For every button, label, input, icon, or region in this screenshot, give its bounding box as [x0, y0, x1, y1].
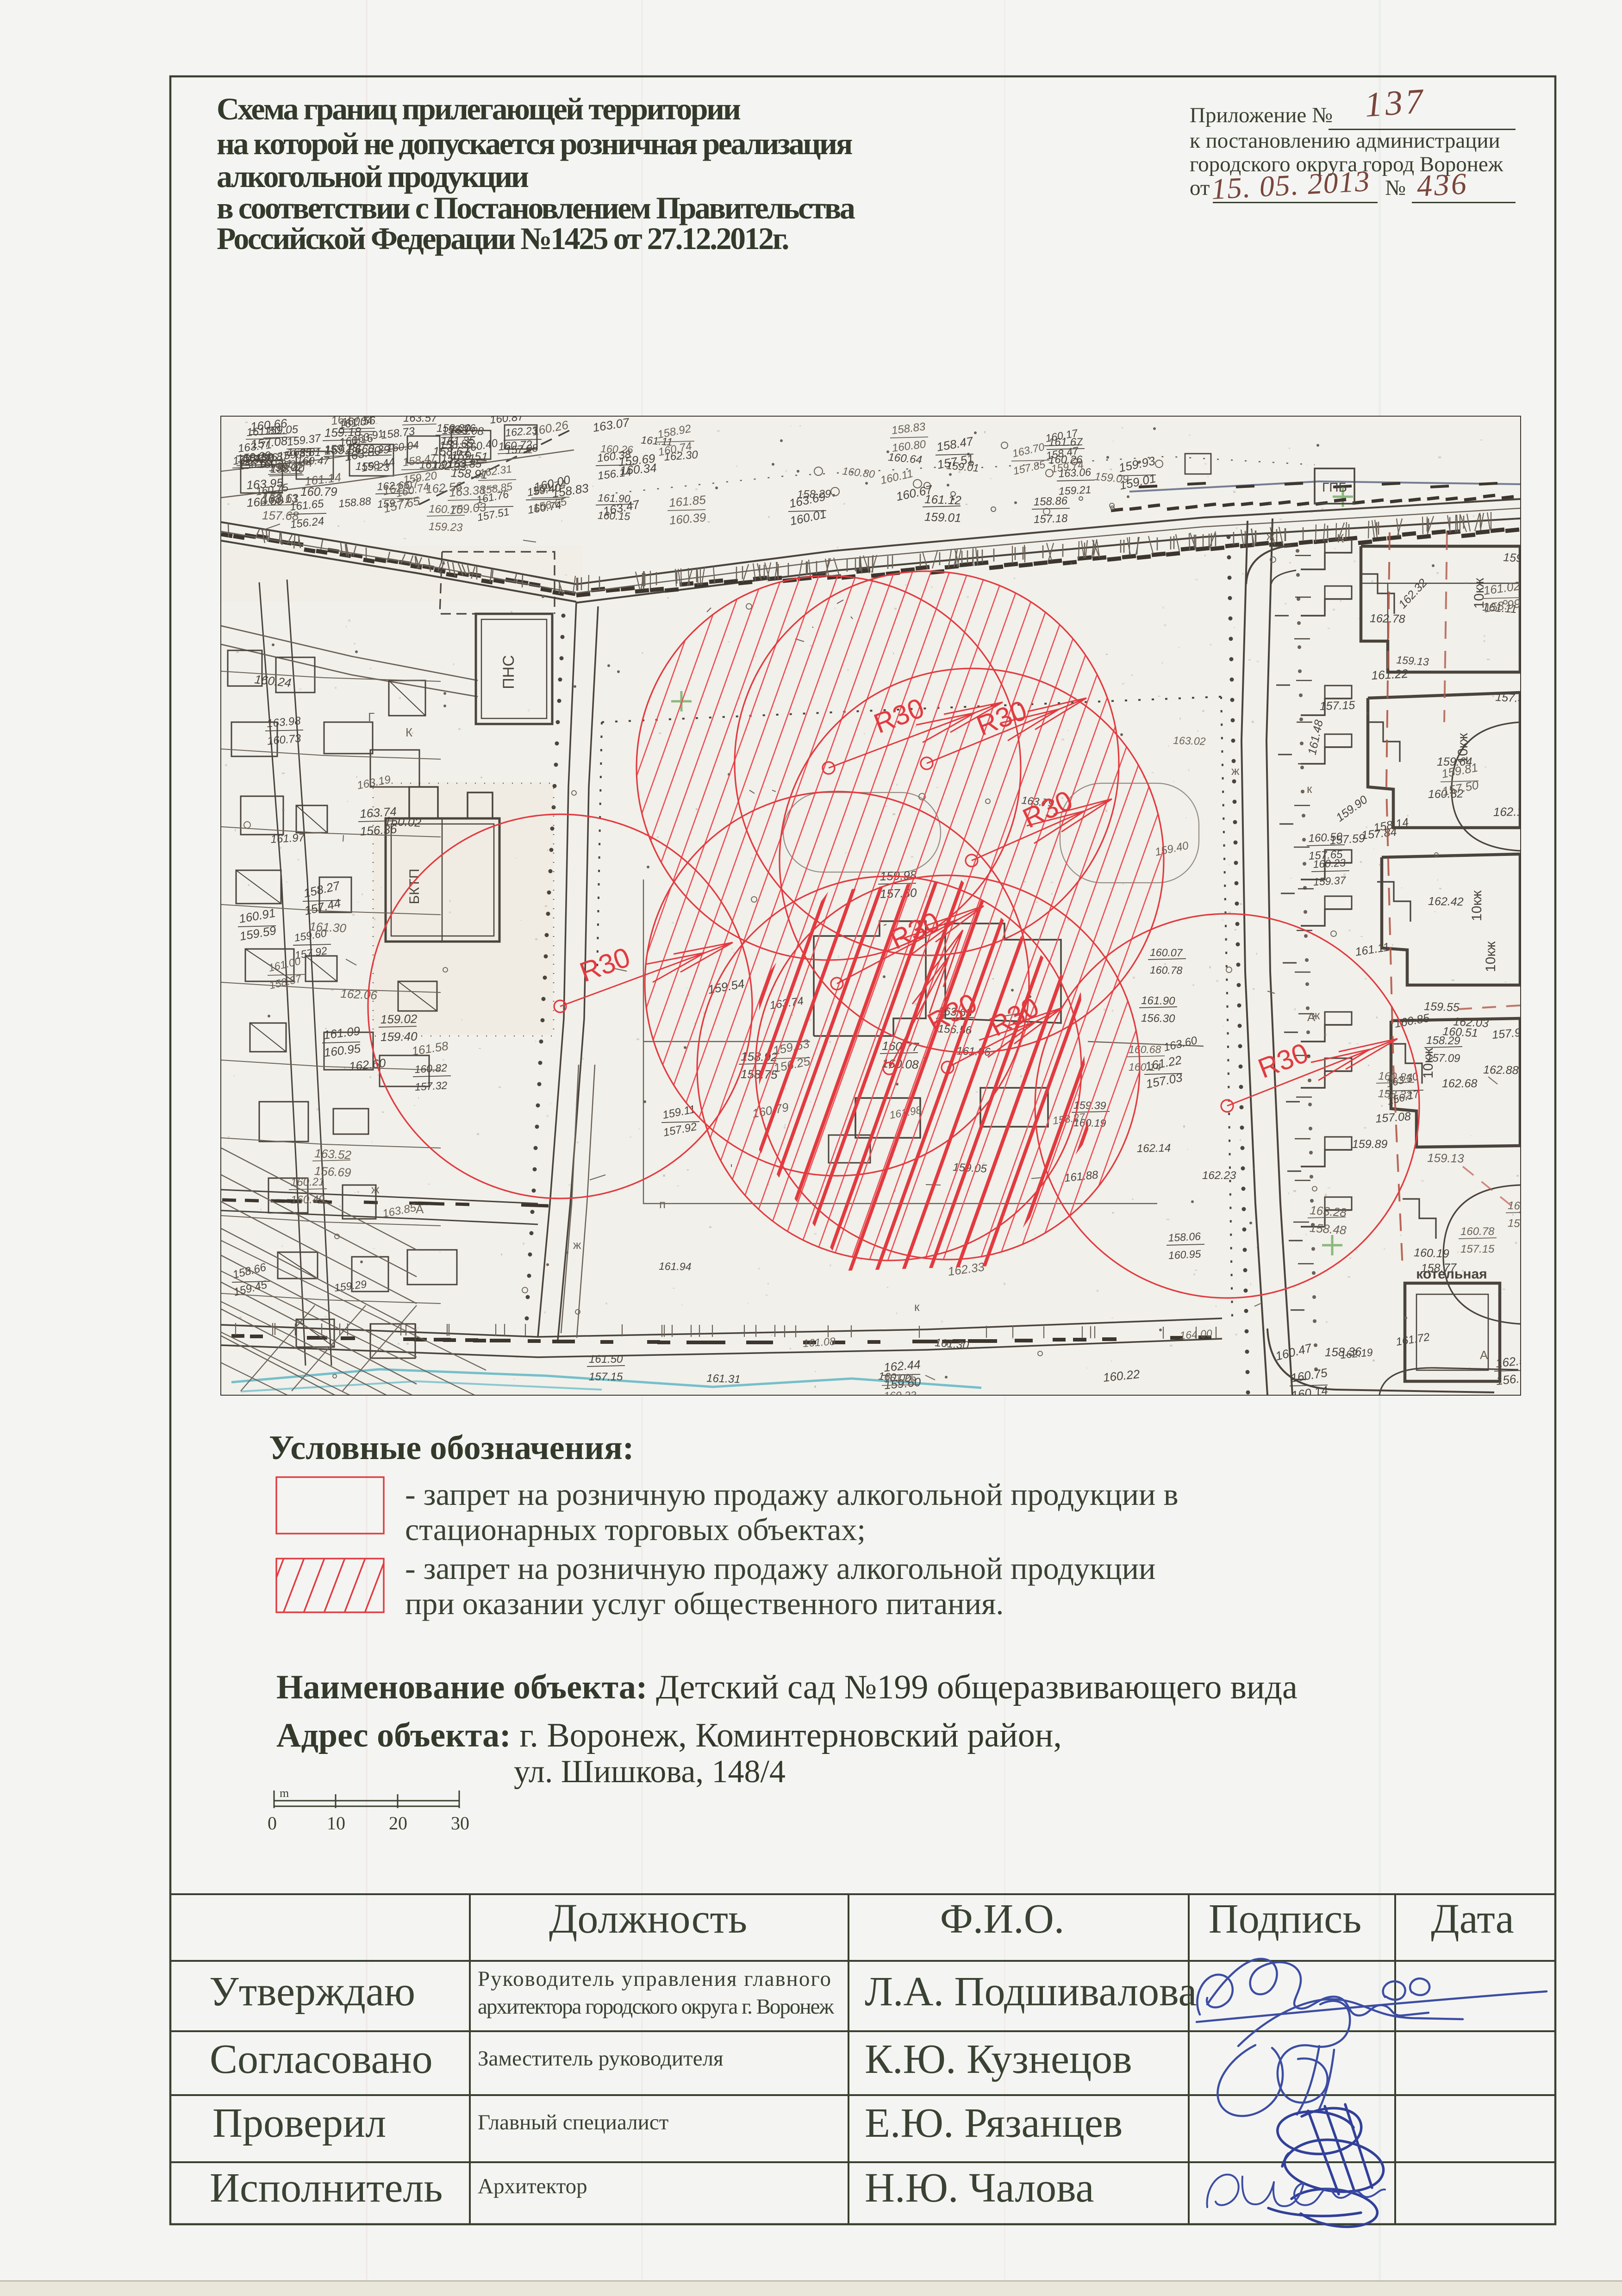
svg-text:160.78: 160.78 [1150, 964, 1183, 976]
svg-text:161.30: 161.30 [309, 919, 347, 935]
svg-text:котельная: котельная [1416, 1267, 1487, 1282]
svg-text:161.22: 161.22 [1371, 667, 1409, 682]
svg-text:162.23: 162.23 [1202, 1169, 1236, 1182]
svg-text:163.52: 163.52 [314, 1146, 352, 1162]
svg-text:160.79: 160.79 [300, 485, 337, 499]
svg-text:156.30: 156.30 [1141, 1012, 1176, 1025]
svg-text:10: 10 [327, 1813, 345, 1834]
svg-text:157.95: 157.95 [1491, 1025, 1528, 1042]
svg-text:к: к [914, 1300, 920, 1314]
svg-text:161.25: 161.25 [884, 1372, 917, 1384]
svg-text:159.01: 159.01 [924, 510, 962, 525]
svg-text:161.94: 161.94 [659, 1260, 692, 1273]
svg-text:159.55: 159.55 [1424, 1000, 1460, 1014]
svg-text:160.49: 160.49 [291, 1193, 325, 1206]
svg-text:15. 05. 2013: 15. 05. 2013 [1210, 164, 1371, 206]
svg-text:158.06: 158.06 [1168, 1230, 1201, 1244]
svg-text:163.08: 163.08 [449, 424, 484, 438]
svg-text:А: А [1480, 1348, 1488, 1362]
svg-text:157.08: 157.08 [1375, 1110, 1411, 1125]
svg-text:К: К [405, 725, 412, 739]
svg-text:160.19: 160.19 [1414, 1246, 1449, 1260]
svg-text:159.51: 159.51 [451, 448, 488, 464]
svg-text:160.68: 160.68 [1129, 1043, 1161, 1055]
svg-text:ж: ж [1266, 529, 1275, 543]
svg-text:159.89: 159.89 [1352, 1138, 1388, 1151]
svg-text:159.23: 159.23 [356, 460, 390, 474]
svg-text:10кж: 10кж [1469, 890, 1485, 921]
svg-text:160.78: 160.78 [1460, 1225, 1495, 1238]
svg-text:157.15: 157.15 [1319, 699, 1355, 713]
svg-text:А: А [416, 1202, 424, 1216]
svg-text:к: к [1307, 782, 1312, 796]
svg-text:160.70: 160.70 [429, 503, 463, 517]
svg-text:160.50: 160.50 [1308, 830, 1343, 845]
svg-text:157.15: 157.15 [589, 1371, 623, 1383]
svg-text:159.23: 159.23 [429, 520, 463, 534]
svg-text:163.06: 163.06 [1058, 466, 1092, 480]
svg-text:10кж: 10кж [1483, 941, 1498, 972]
svg-text:30: 30 [451, 1813, 469, 1834]
svg-text:Г: Г [368, 710, 374, 724]
svg-text:163.57: 163.57 [403, 412, 438, 424]
svg-text:160.82: 160.82 [414, 1061, 448, 1075]
svg-text:158.32: 158.32 [1378, 1087, 1412, 1102]
svg-text:ПНС: ПНС [500, 655, 518, 689]
svg-text:m: m [280, 1786, 289, 1800]
svg-text:162.14: 162.14 [1137, 1142, 1171, 1155]
svg-text:А: А [1307, 1010, 1316, 1024]
svg-text:ж: ж [1231, 764, 1240, 778]
svg-text:156.75: 156.75 [1508, 1217, 1542, 1231]
svg-text:162.88: 162.88 [1483, 1063, 1519, 1077]
svg-text:157.09: 157.09 [1426, 1052, 1460, 1065]
svg-text:К: К [1337, 531, 1344, 545]
svg-text:157.15: 157.15 [1460, 1243, 1495, 1255]
svg-text:160.39: 160.39 [356, 443, 390, 456]
svg-text:162.10: 162.10 [1493, 805, 1531, 819]
svg-text:160.02: 160.02 [384, 814, 422, 830]
svg-text:161.08: 161.08 [803, 1335, 836, 1349]
svg-text:157.80: 157.80 [880, 886, 917, 901]
svg-text:162.03: 162.03 [1508, 1199, 1542, 1213]
svg-text:20: 20 [389, 1813, 407, 1834]
svg-text:159.40: 159.40 [381, 1029, 418, 1044]
svg-text:159.02: 159.02 [381, 1012, 418, 1026]
svg-text:164.00: 164.00 [1179, 1327, 1213, 1341]
svg-text:ж: ж [573, 1238, 581, 1252]
svg-text:160.95: 160.95 [1168, 1248, 1201, 1261]
svg-text:10кж: 10кж [1455, 733, 1471, 764]
svg-text:160.47: 160.47 [297, 455, 330, 467]
svg-text:157.18: 157.18 [1034, 512, 1068, 526]
svg-text:159.37: 159.37 [1313, 874, 1347, 888]
svg-text:162.42: 162.42 [1428, 895, 1464, 908]
svg-text:159.13: 159.13 [1427, 1151, 1465, 1165]
svg-text:158.29: 158.29 [1426, 1034, 1460, 1047]
svg-text:158.48: 158.48 [1309, 1221, 1347, 1237]
svg-text:137: 137 [1363, 81, 1427, 125]
svg-text:160.23: 160.23 [1313, 856, 1346, 870]
svg-text:157.32: 157.32 [414, 1079, 448, 1093]
svg-text:161.90: 161.90 [1141, 994, 1176, 1007]
svg-text:159.13: 159.13 [1396, 654, 1429, 668]
svg-text:161.97: 161.97 [270, 831, 306, 846]
svg-text:163.02: 163.02 [1173, 734, 1206, 747]
svg-text:159.21: 159.21 [1058, 483, 1092, 497]
svg-text:162.78: 162.78 [1370, 612, 1405, 625]
svg-text:161.31: 161.31 [706, 1372, 741, 1386]
svg-text:436: 436 [1416, 167, 1469, 203]
svg-text:157.38: 157.38 [1495, 691, 1531, 705]
svg-text:0: 0 [268, 1813, 277, 1834]
svg-text:161.50: 161.50 [589, 1353, 623, 1366]
svg-text:160.15: 160.15 [598, 509, 630, 522]
svg-text:160.84: 160.84 [1378, 1070, 1413, 1084]
svg-text:160.07: 160.07 [1150, 946, 1183, 959]
svg-text:п: п [659, 1197, 666, 1211]
svg-text:ГПБ: ГПБ [1322, 480, 1347, 494]
svg-text:156.69: 156.69 [314, 1164, 351, 1179]
svg-text:162.68: 162.68 [1442, 1077, 1478, 1090]
svg-text:162.06: 162.06 [340, 986, 378, 1002]
